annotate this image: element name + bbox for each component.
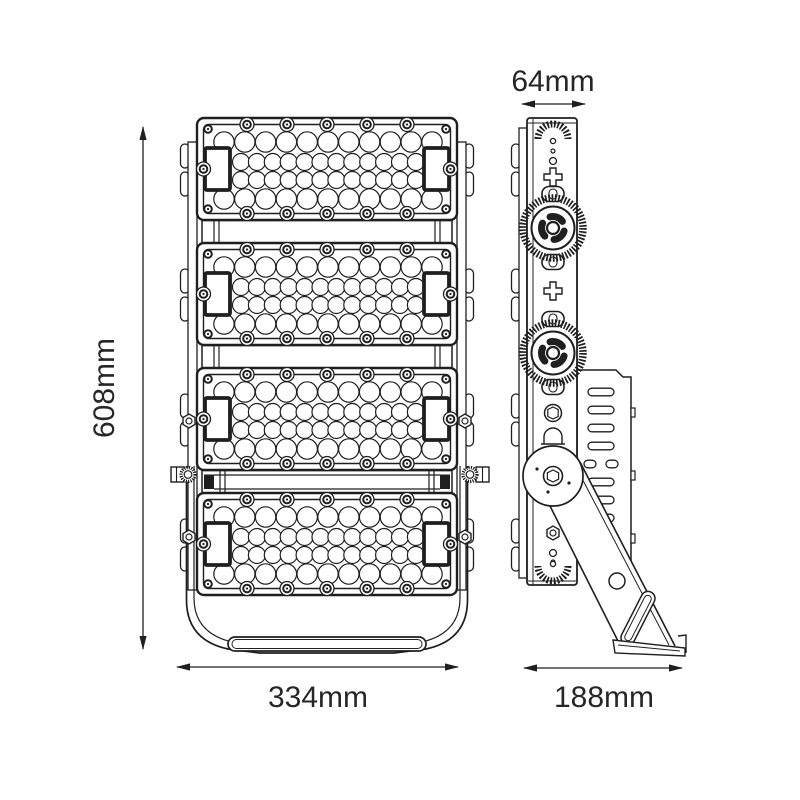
floodlight-technical-drawing: 608mm 334mm 64mm 188mm bbox=[0, 0, 800, 800]
led-module-3 bbox=[197, 368, 458, 471]
drawing-canvas: 608mm 334mm 64mm 188mm bbox=[0, 0, 800, 800]
thickness-dimension-label: 64mm bbox=[511, 65, 594, 98]
led-module-4 bbox=[197, 493, 458, 596]
yoke-handle-bar bbox=[228, 637, 426, 651]
width-dimension-label: 334mm bbox=[268, 681, 368, 714]
dimension-depth: 188mm bbox=[523, 664, 683, 714]
dimension-height: 608mm bbox=[88, 126, 147, 650]
height-dimension-label: 608mm bbox=[88, 338, 121, 438]
led-module-2 bbox=[197, 243, 458, 346]
front-view bbox=[171, 118, 489, 654]
depth-dimension-label: 188mm bbox=[554, 681, 654, 714]
module-band bbox=[202, 346, 452, 369]
led-module-1 bbox=[197, 118, 458, 221]
pivot-head bbox=[523, 446, 583, 506]
dimension-width: 334mm bbox=[176, 663, 459, 714]
side-clips bbox=[512, 128, 528, 578]
pivot-band bbox=[202, 471, 452, 494]
dimension-thickness: 64mm bbox=[511, 65, 594, 108]
module-band bbox=[202, 221, 452, 244]
side-view bbox=[512, 118, 687, 656]
